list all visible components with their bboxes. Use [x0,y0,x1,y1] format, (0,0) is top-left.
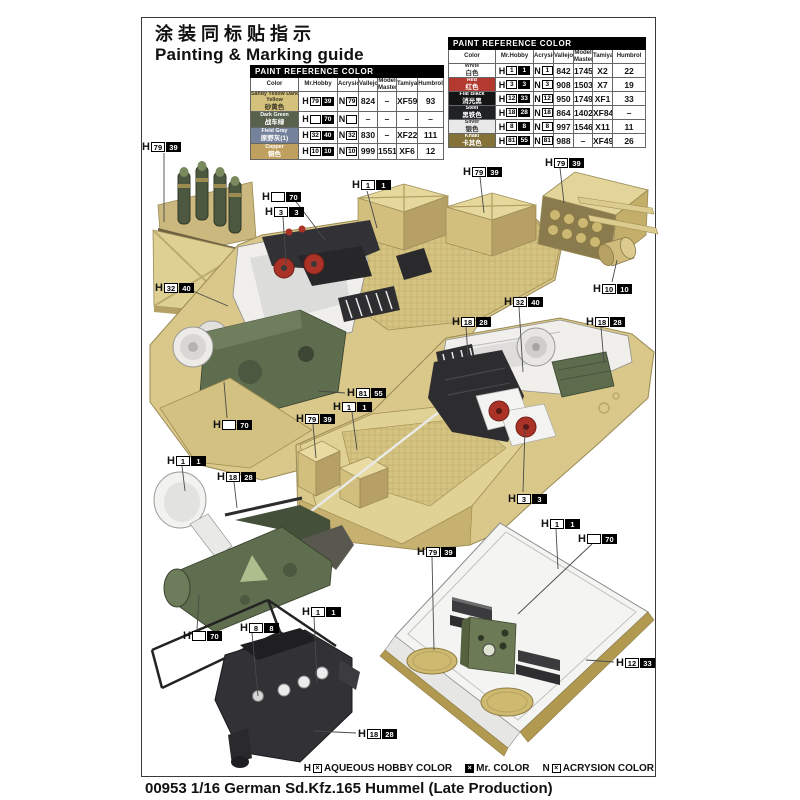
paint-callout-h1-1: H11 [167,455,206,467]
paint-system-legend: H× AQUEOUS HOBBY COLOR × Mr. COLOR N× AC… [280,763,654,774]
legend-mr-color: × Mr. COLOR [465,763,529,774]
paint-callout-h-70: H70 [183,630,222,642]
turntable-ring-left [407,648,457,674]
paint-callout-h10-10: H1010 [593,283,632,295]
paint-callout-h18-28: H1828 [452,316,491,328]
paint-callout-h79-39: H7939 [417,546,456,558]
kit-title: 00953 1/16 German Sd.Kfz.165 Hummel (Lat… [145,780,553,797]
paint-callout-h-70: H70 [578,533,617,545]
paint-callout-h3-3: H33 [265,206,304,218]
paint-callout-h1-1: H11 [352,179,391,191]
paint-callout-h1-1: H11 [333,401,372,413]
paint-callout-h18-28: H1828 [586,316,625,328]
legend-aqueous: H× AQUEOUS HOBBY COLOR [304,763,452,774]
turntable-ring-right [481,688,533,716]
paint-callout-h-70: H70 [213,419,252,431]
paint-callout-h3-3: H33 [508,493,547,505]
diagram-artwork [0,0,800,800]
paint-callout-h1-1: H11 [541,518,580,530]
filled-number-box-icon: × [465,764,474,773]
paint-callout-h79-39: H7939 [142,141,181,153]
paint-callout-h79-39: H7939 [296,413,335,425]
legend-acrysion: N× ACRYSION COLOR [542,763,654,774]
paint-callout-h32-40: H3240 [155,282,194,294]
paint-callout-h-70: H70 [262,191,301,203]
instruction-page: 涂装同标贴指示 Painting & Marking guide PAINT R… [0,0,800,800]
paint-callout-h32-40: H3240 [504,296,543,308]
paint-callout-h81-55: H8155 [347,387,386,399]
paint-callout-h79-39: H7939 [463,166,502,178]
paint-callout-h12-33: H1233 [616,657,655,669]
paint-callout-h18-28: H1828 [358,728,397,740]
number-box-icon: × [552,764,561,773]
paint-callout-h1-1: H11 [302,606,341,618]
paint-callout-h8-8: H88 [240,622,279,634]
number-box-icon: × [313,764,322,773]
paint-callout-h18-28: H1828 [217,471,256,483]
paint-callout-h79-39: H7939 [545,157,584,169]
instrument-panel [460,617,516,674]
